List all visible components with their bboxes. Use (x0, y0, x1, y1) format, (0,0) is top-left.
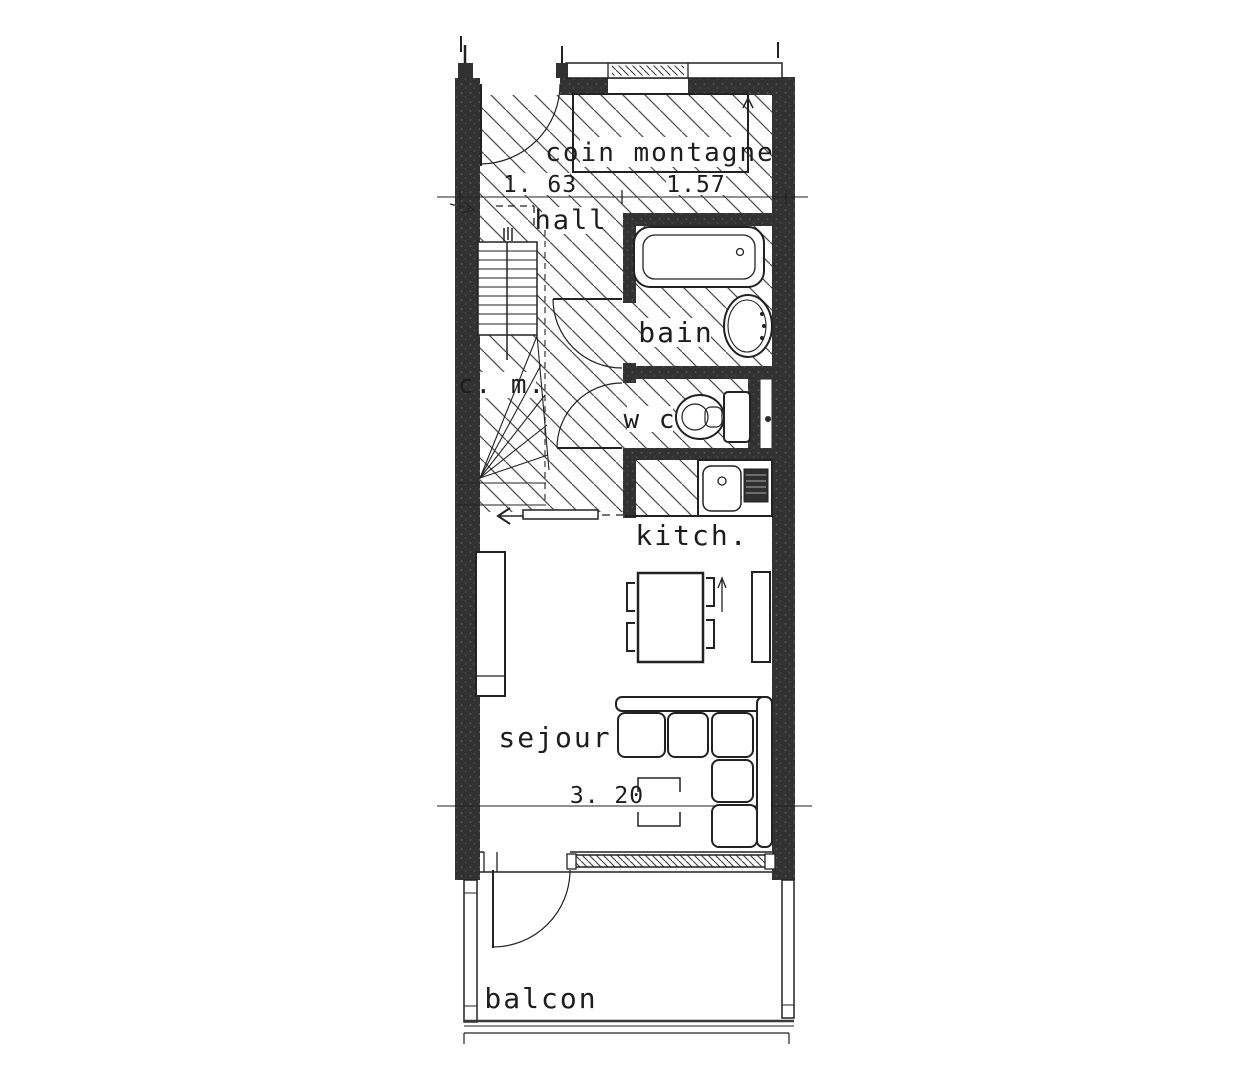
label-bain: bain (638, 316, 713, 349)
balcony-structure (464, 880, 794, 1044)
dim-coin: 1.57 (666, 172, 725, 198)
label-sejour: sejour (498, 721, 611, 754)
balcony-wall-left (464, 880, 477, 1022)
label-wc: w c (624, 405, 677, 435)
label-hall: hall (534, 205, 607, 236)
dim-sejour: 3. 20 (570, 783, 644, 809)
sofa-cushion (712, 760, 753, 802)
sofa-back-right (757, 697, 772, 847)
kitchen-sink (703, 466, 741, 511)
corner-sofa (616, 697, 772, 847)
dim-entry: 1. 63 (503, 172, 577, 198)
wall-top-left (560, 77, 608, 95)
sliding-glass-band (575, 855, 767, 867)
sofa-cushion (618, 713, 665, 757)
label-balcony: balcon (484, 982, 597, 1015)
stove (744, 469, 768, 502)
floorplan-page: coin montagne 1. 63 1.57 hall bain c. m.… (0, 0, 1243, 1080)
floorplan-drawing: coin montagne 1. 63 1.57 hall bain c. m.… (0, 0, 1243, 1080)
balcony-door (484, 852, 570, 948)
table-arrow (718, 578, 726, 612)
door-post-left (458, 63, 473, 78)
label-cm: c. m. (458, 370, 546, 400)
wall-coin-bain (625, 213, 772, 226)
toilet (676, 392, 750, 442)
sofa-cushion (712, 805, 757, 847)
coffee-table (638, 778, 680, 826)
wall-kitchen-left (623, 448, 636, 518)
bathtub (634, 227, 764, 287)
balcony-wall-right (782, 880, 794, 1018)
dining-table (638, 573, 703, 662)
south-window-wall (480, 852, 775, 872)
label-coin-montagne: coin montagne (545, 138, 775, 168)
wall-left (455, 78, 480, 880)
washbasin (724, 295, 772, 357)
sofa-cushion (668, 713, 708, 757)
window-sill-hatch (612, 66, 684, 76)
door-post-right (556, 63, 568, 78)
threshold-bar (523, 510, 598, 519)
label-kitchen: kitch. (635, 519, 748, 552)
wall-wc-kitchen (623, 448, 795, 460)
cabinet (476, 552, 505, 696)
sofa-cushion (712, 713, 753, 757)
balcony-dimension-line (464, 1033, 789, 1044)
wall-bain-wc (625, 366, 772, 379)
side-shelf (752, 572, 770, 662)
sofa-back-top (616, 697, 772, 711)
duct-dot (765, 416, 771, 422)
